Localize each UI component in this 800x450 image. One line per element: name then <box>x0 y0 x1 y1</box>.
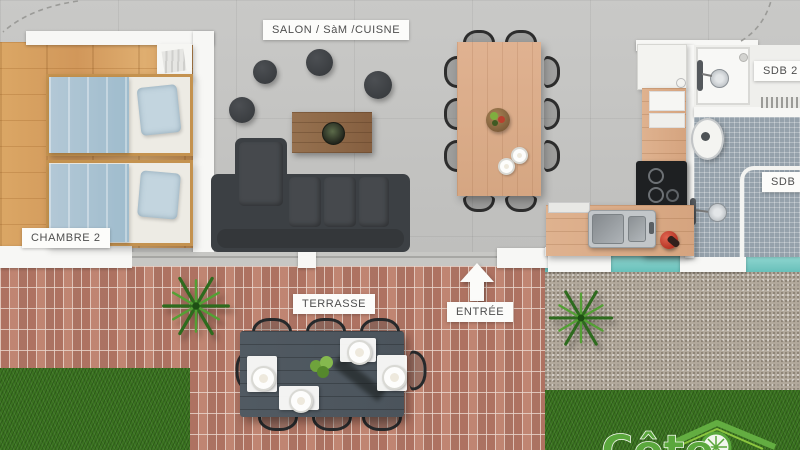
door-swing-arc <box>741 1 771 41</box>
label-bathroom: SDB <box>762 172 800 192</box>
label-living: SALON / SàM /CUISNE <box>263 20 409 40</box>
logo: Côte <box>595 414 800 450</box>
label-entrance: ENTRÉE <box>447 302 513 322</box>
plate <box>382 365 407 390</box>
label-bathroom2: SDB 2 <box>754 61 800 81</box>
floor-plan: CHAMBRE 2 SALON / SàM /CUISNE SDB 2 SDB … <box>0 0 800 450</box>
label-terrace: TERRASSE <box>293 294 375 314</box>
palm-plant <box>545 282 617 354</box>
label-bedroom2: CHAMBRE 2 <box>22 228 110 248</box>
plate <box>347 340 372 365</box>
palm-plant <box>158 268 234 344</box>
logo-text: Côte <box>601 426 714 450</box>
plate <box>251 366 276 391</box>
table-plant <box>308 354 336 380</box>
door-swing-arc <box>3 1 78 32</box>
entrance-arrow-icon <box>460 263 494 303</box>
plate <box>289 389 313 413</box>
